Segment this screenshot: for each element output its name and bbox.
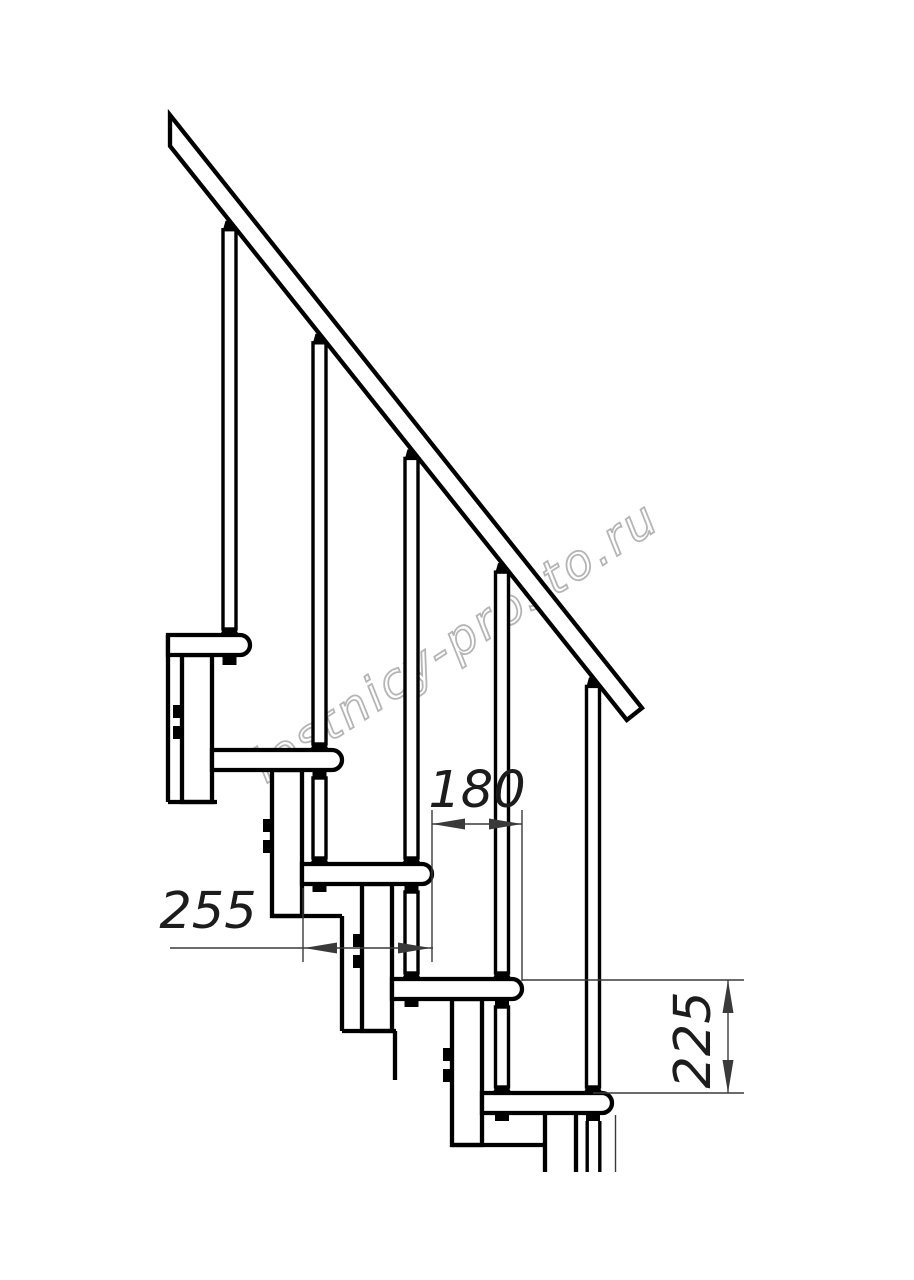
dimension-value: 180 (428, 761, 525, 820)
support-column-cut (545, 1113, 576, 1172)
under-bolt (223, 657, 237, 665)
dimension-riser-height: 225 (522, 980, 744, 1172)
arrowhead-left (304, 943, 337, 954)
clip-bolt (353, 934, 364, 947)
baluster-shaft (313, 778, 326, 858)
baluster (493, 563, 512, 1121)
tread-clamp (584, 1087, 603, 1093)
arrowhead-left (432, 819, 465, 830)
clip-bolt (173, 726, 184, 739)
tread (168, 635, 250, 655)
baluster (220, 221, 239, 665)
support-column (272, 770, 302, 916)
tread-clamp (493, 973, 512, 979)
arrowhead-up (723, 980, 734, 1013)
under-bolt (405, 999, 419, 1007)
support-column (182, 655, 212, 802)
drawing-page: lestnicy-prosto.ru (0, 0, 914, 1280)
tread-clamp (402, 858, 421, 864)
baluster-shaft (587, 686, 600, 1087)
arrowhead-down (723, 1060, 734, 1093)
dimension-value: 255 (159, 882, 256, 941)
baluster-shaft (496, 1007, 509, 1087)
support-column (362, 884, 392, 1031)
baluster-shaft-cut (587, 1121, 600, 1172)
foot-flare (310, 858, 329, 864)
clip-bolt (353, 955, 364, 968)
support-column (452, 999, 482, 1145)
foot-flare (220, 629, 239, 635)
baluster-shaft (405, 458, 418, 858)
dimension-step-run: 180 (428, 761, 525, 981)
baluster-shaft (313, 343, 326, 744)
staircase-technical-drawing: lestnicy-prosto.ru (0, 0, 914, 1280)
clip-bolt (263, 819, 274, 832)
clip-bolt (263, 840, 274, 853)
baluster-shaft (223, 230, 236, 629)
foot-flare (402, 973, 421, 979)
clip-bolt (443, 1069, 454, 1082)
foot-flare (493, 1087, 512, 1093)
tread-clamp (310, 744, 329, 750)
under-bolt (586, 1113, 600, 1121)
baluster (402, 449, 421, 1007)
under-bolt (495, 1113, 509, 1121)
tread (392, 979, 522, 999)
under-bolt (313, 884, 327, 892)
tread (302, 864, 432, 884)
baluster-shaft (405, 892, 418, 973)
dimension-value: 225 (664, 991, 723, 1088)
baluster (310, 334, 329, 892)
clip-bolt (443, 1048, 454, 1061)
clip-bolt (173, 705, 184, 718)
tread (212, 750, 342, 770)
balusters (220, 221, 603, 1172)
tread (482, 1093, 612, 1113)
